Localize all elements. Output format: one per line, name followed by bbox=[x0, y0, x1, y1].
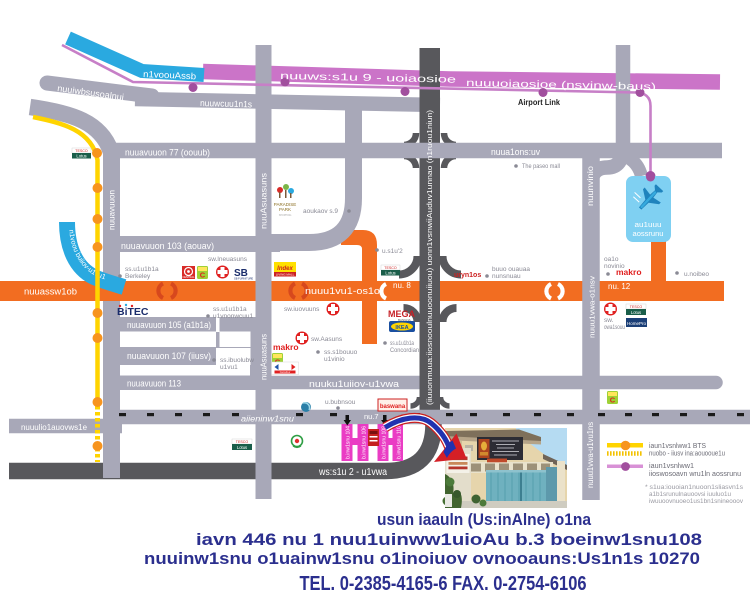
svg-text:CENTRAL: CENTRAL bbox=[182, 275, 195, 279]
svg-text:nuobo - iiusv ina:aouooue1u: nuobo - iiusv ina:aouooue1u bbox=[649, 451, 725, 458]
svg-text:Berkeley: Berkeley bbox=[125, 273, 151, 280]
svg-text:u1vinio: u1vinio bbox=[324, 356, 345, 363]
svg-text:The paseo mall: The paseo mall bbox=[522, 163, 560, 170]
svg-text:Lotus: Lotus bbox=[631, 310, 641, 315]
svg-text:nu. 8: nu. 8 bbox=[393, 281, 411, 290]
svg-text:Concordian: Concordian bbox=[390, 347, 419, 354]
svg-text:nuua1ons:uv: nuua1ons:uv bbox=[491, 147, 540, 157]
svg-text:nuuku1uiiov-u1vwa: nuuku1uiiov-u1vwa bbox=[309, 379, 399, 389]
svg-text:uryn1os: uryn1os bbox=[454, 272, 481, 279]
svg-text:Lotus: Lotus bbox=[237, 445, 247, 450]
svg-text:au1uuu: au1uuu bbox=[635, 222, 662, 229]
svg-text:u.s1u'2: u.s1u'2 bbox=[382, 248, 403, 255]
svg-text:u.bubnsou: u.bubnsou bbox=[325, 399, 356, 406]
svg-text:baswana: baswana bbox=[380, 404, 406, 410]
svg-text:iavn 446 nu 1 nuu1uinww1uioAu: iavn 446 nu 1 nuu1uinww1uioAu b.3 boeinw… bbox=[196, 531, 702, 549]
svg-text:b.inw1snu 110: b.inw1snu 110 bbox=[397, 426, 403, 459]
svg-text:nunsnuau: nunsnuau bbox=[492, 273, 521, 280]
svg-text:aiieninw1snu: aiieninw1snu bbox=[241, 414, 294, 424]
svg-text:aoukaov s.9: aoukaov s.9 bbox=[303, 208, 338, 215]
svg-text:sw.: sw. bbox=[604, 317, 614, 324]
svg-text:b.inw1snu 106: b.inw1snu 106 bbox=[362, 426, 368, 459]
svg-text:TESCO: TESCO bbox=[75, 149, 88, 153]
svg-text:nuuassw1ob: nuuassw1ob bbox=[24, 287, 77, 297]
svg-text:ss.u1u1b1a: ss.u1u1b1a bbox=[390, 340, 414, 347]
svg-text:nuuavuuon 105 (a1b1a): nuuavuuon 105 (a1b1a) bbox=[127, 320, 211, 330]
svg-text:nu.7: nu.7 bbox=[364, 412, 379, 421]
svg-text:nuuAsuasuns: nuuAsuasuns bbox=[260, 173, 269, 229]
svg-text:makro: makro bbox=[616, 267, 642, 277]
svg-text:C: C bbox=[610, 396, 616, 405]
svg-text:iwuuoovnuoeo1us1bn1snineooov: iwuuoovnuoeo1us1bn1snineooov bbox=[649, 498, 744, 505]
svg-text:LIVING MALL: LIVING MALL bbox=[276, 273, 295, 277]
svg-text:nuuAsuasuns: nuuAsuasuns bbox=[260, 334, 269, 380]
svg-text:nuuu1vwa-o1nsv: nuuu1vwa-o1nsv bbox=[588, 276, 597, 338]
svg-text:nuuavuuon 77 (oouub): nuuavuuon 77 (oouub) bbox=[125, 148, 210, 158]
svg-text:nuuulio1auovws1e: nuuulio1auovws1e bbox=[21, 422, 87, 432]
svg-text:TESCO: TESCO bbox=[630, 305, 643, 309]
svg-text:Lotus: Lotus bbox=[76, 154, 86, 159]
svg-text:SB FURNITURE: SB FURNITURE bbox=[234, 277, 253, 281]
svg-text:ss.s1bouuo: ss.s1bouuo bbox=[324, 349, 358, 356]
svg-text:ss.u1u1b1a: ss.u1u1b1a bbox=[213, 306, 247, 313]
svg-text:sw.lneuasuns: sw.lneuasuns bbox=[208, 256, 248, 263]
svg-text:sw.iuovuuns: sw.iuovuuns bbox=[284, 306, 320, 313]
svg-text:iaun1vsnlww1: iaun1vsnlww1 bbox=[649, 463, 694, 470]
svg-text:IKEA: IKEA bbox=[395, 325, 408, 331]
svg-text:PARK: PARK bbox=[279, 207, 291, 212]
svg-text:ss.u1u1b1a: ss.u1u1b1a bbox=[125, 266, 159, 273]
svg-text:Carrefour: Carrefour bbox=[280, 371, 291, 374]
svg-text:C: C bbox=[200, 271, 206, 280]
svg-text:iaun1vsnlww1 BTS: iaun1vsnlww1 BTS bbox=[649, 443, 706, 450]
svg-text:oa1o: oa1o bbox=[604, 256, 619, 263]
svg-text:nuuavuuon 113: nuuavuuon 113 bbox=[127, 379, 181, 389]
svg-text:(iiuuonmuua:iiosnooulnuuoonuii: (iiuuonmuua:iiosnooulnuuoonuiiuou) uonn1… bbox=[427, 110, 434, 405]
svg-text:u.noibeo: u.noibeo bbox=[684, 271, 709, 278]
svg-text:nu. 12: nu. 12 bbox=[608, 282, 631, 291]
svg-text:HomePro: HomePro bbox=[627, 321, 647, 326]
svg-text:Airport Link: Airport Link bbox=[518, 97, 560, 107]
svg-text:Index: Index bbox=[277, 266, 293, 272]
svg-text:nuuu1vwa-u1vu1ns: nuuu1vwa-u1vu1ns bbox=[586, 422, 595, 488]
svg-text:TESCO: TESCO bbox=[384, 266, 397, 270]
svg-text:iioswosoavn wru1ln aossrunu: iioswosoavn wru1ln aossrunu bbox=[649, 471, 741, 478]
svg-text:ss.ibuolubw: ss.ibuolubw bbox=[220, 357, 254, 364]
svg-text:ws:s1u 2 - u1vwa: ws:s1u 2 - u1vwa bbox=[318, 466, 387, 478]
svg-text:u1vnonwcuu1: u1vnonwcuu1 bbox=[213, 313, 253, 320]
svg-text:nuuavuuon: nuuavuuon bbox=[108, 190, 117, 230]
svg-text:nuuu1vu1-os1o: nuuu1vu1-os1o bbox=[305, 286, 380, 296]
svg-text:nuunvinio: nuunvinio bbox=[586, 165, 595, 206]
svg-text:TESCO: TESCO bbox=[236, 440, 249, 444]
svg-text:makro: makro bbox=[273, 342, 299, 352]
svg-text:BiTEC: BiTEC bbox=[117, 306, 149, 318]
svg-text:Lotus: Lotus bbox=[385, 271, 395, 276]
svg-text:owa1souu: owa1souu bbox=[604, 324, 625, 331]
svg-text:b.inw1snu 108: b.inw1snu 108 bbox=[382, 426, 388, 459]
svg-text:* s1ua:iouoian1nuoon1sliasvn1s: * s1ua:iouoian1nuoon1sliasvn1s bbox=[645, 484, 743, 491]
svg-text:aossrunu: aossrunu bbox=[633, 231, 664, 238]
svg-text:nuuwcuu1n1s: nuuwcuu1n1s bbox=[200, 98, 253, 109]
svg-text:buuo ouauaa: buuo ouauaa bbox=[492, 266, 530, 273]
svg-text:SHOPPING: SHOPPING bbox=[279, 214, 292, 217]
svg-text:usun iaauln (Us:inAlne) o1na: usun iaauln (Us:inAlne) o1na bbox=[377, 511, 592, 529]
svg-text:nuuavuuon 103 (aouav): nuuavuuon 103 (aouav) bbox=[121, 241, 214, 251]
svg-text:a1b1srunulnauoovsi iuuluo1u: a1b1srunulnauoovsi iuuluo1u bbox=[649, 491, 731, 498]
svg-text:b.inw1snu 104: b.inw1snu 104 bbox=[346, 426, 352, 459]
svg-text:nuuinw1snu o1uainw1snu o1inoiu: nuuinw1snu o1uainw1snu o1inoiuov ovnooau… bbox=[144, 550, 700, 568]
svg-text:TEL. 0-2385-4165-6 FAX. 0-27: TEL. 0-2385-4165-6 FAX. 0-2754-6106 bbox=[300, 572, 587, 595]
svg-text:sw.Aasuns: sw.Aasuns bbox=[311, 336, 343, 343]
svg-text:nuuavuuon 107 (iiusv): nuuavuuon 107 (iiusv) bbox=[127, 351, 211, 361]
svg-text:u1vu1: u1vu1 bbox=[220, 364, 238, 371]
